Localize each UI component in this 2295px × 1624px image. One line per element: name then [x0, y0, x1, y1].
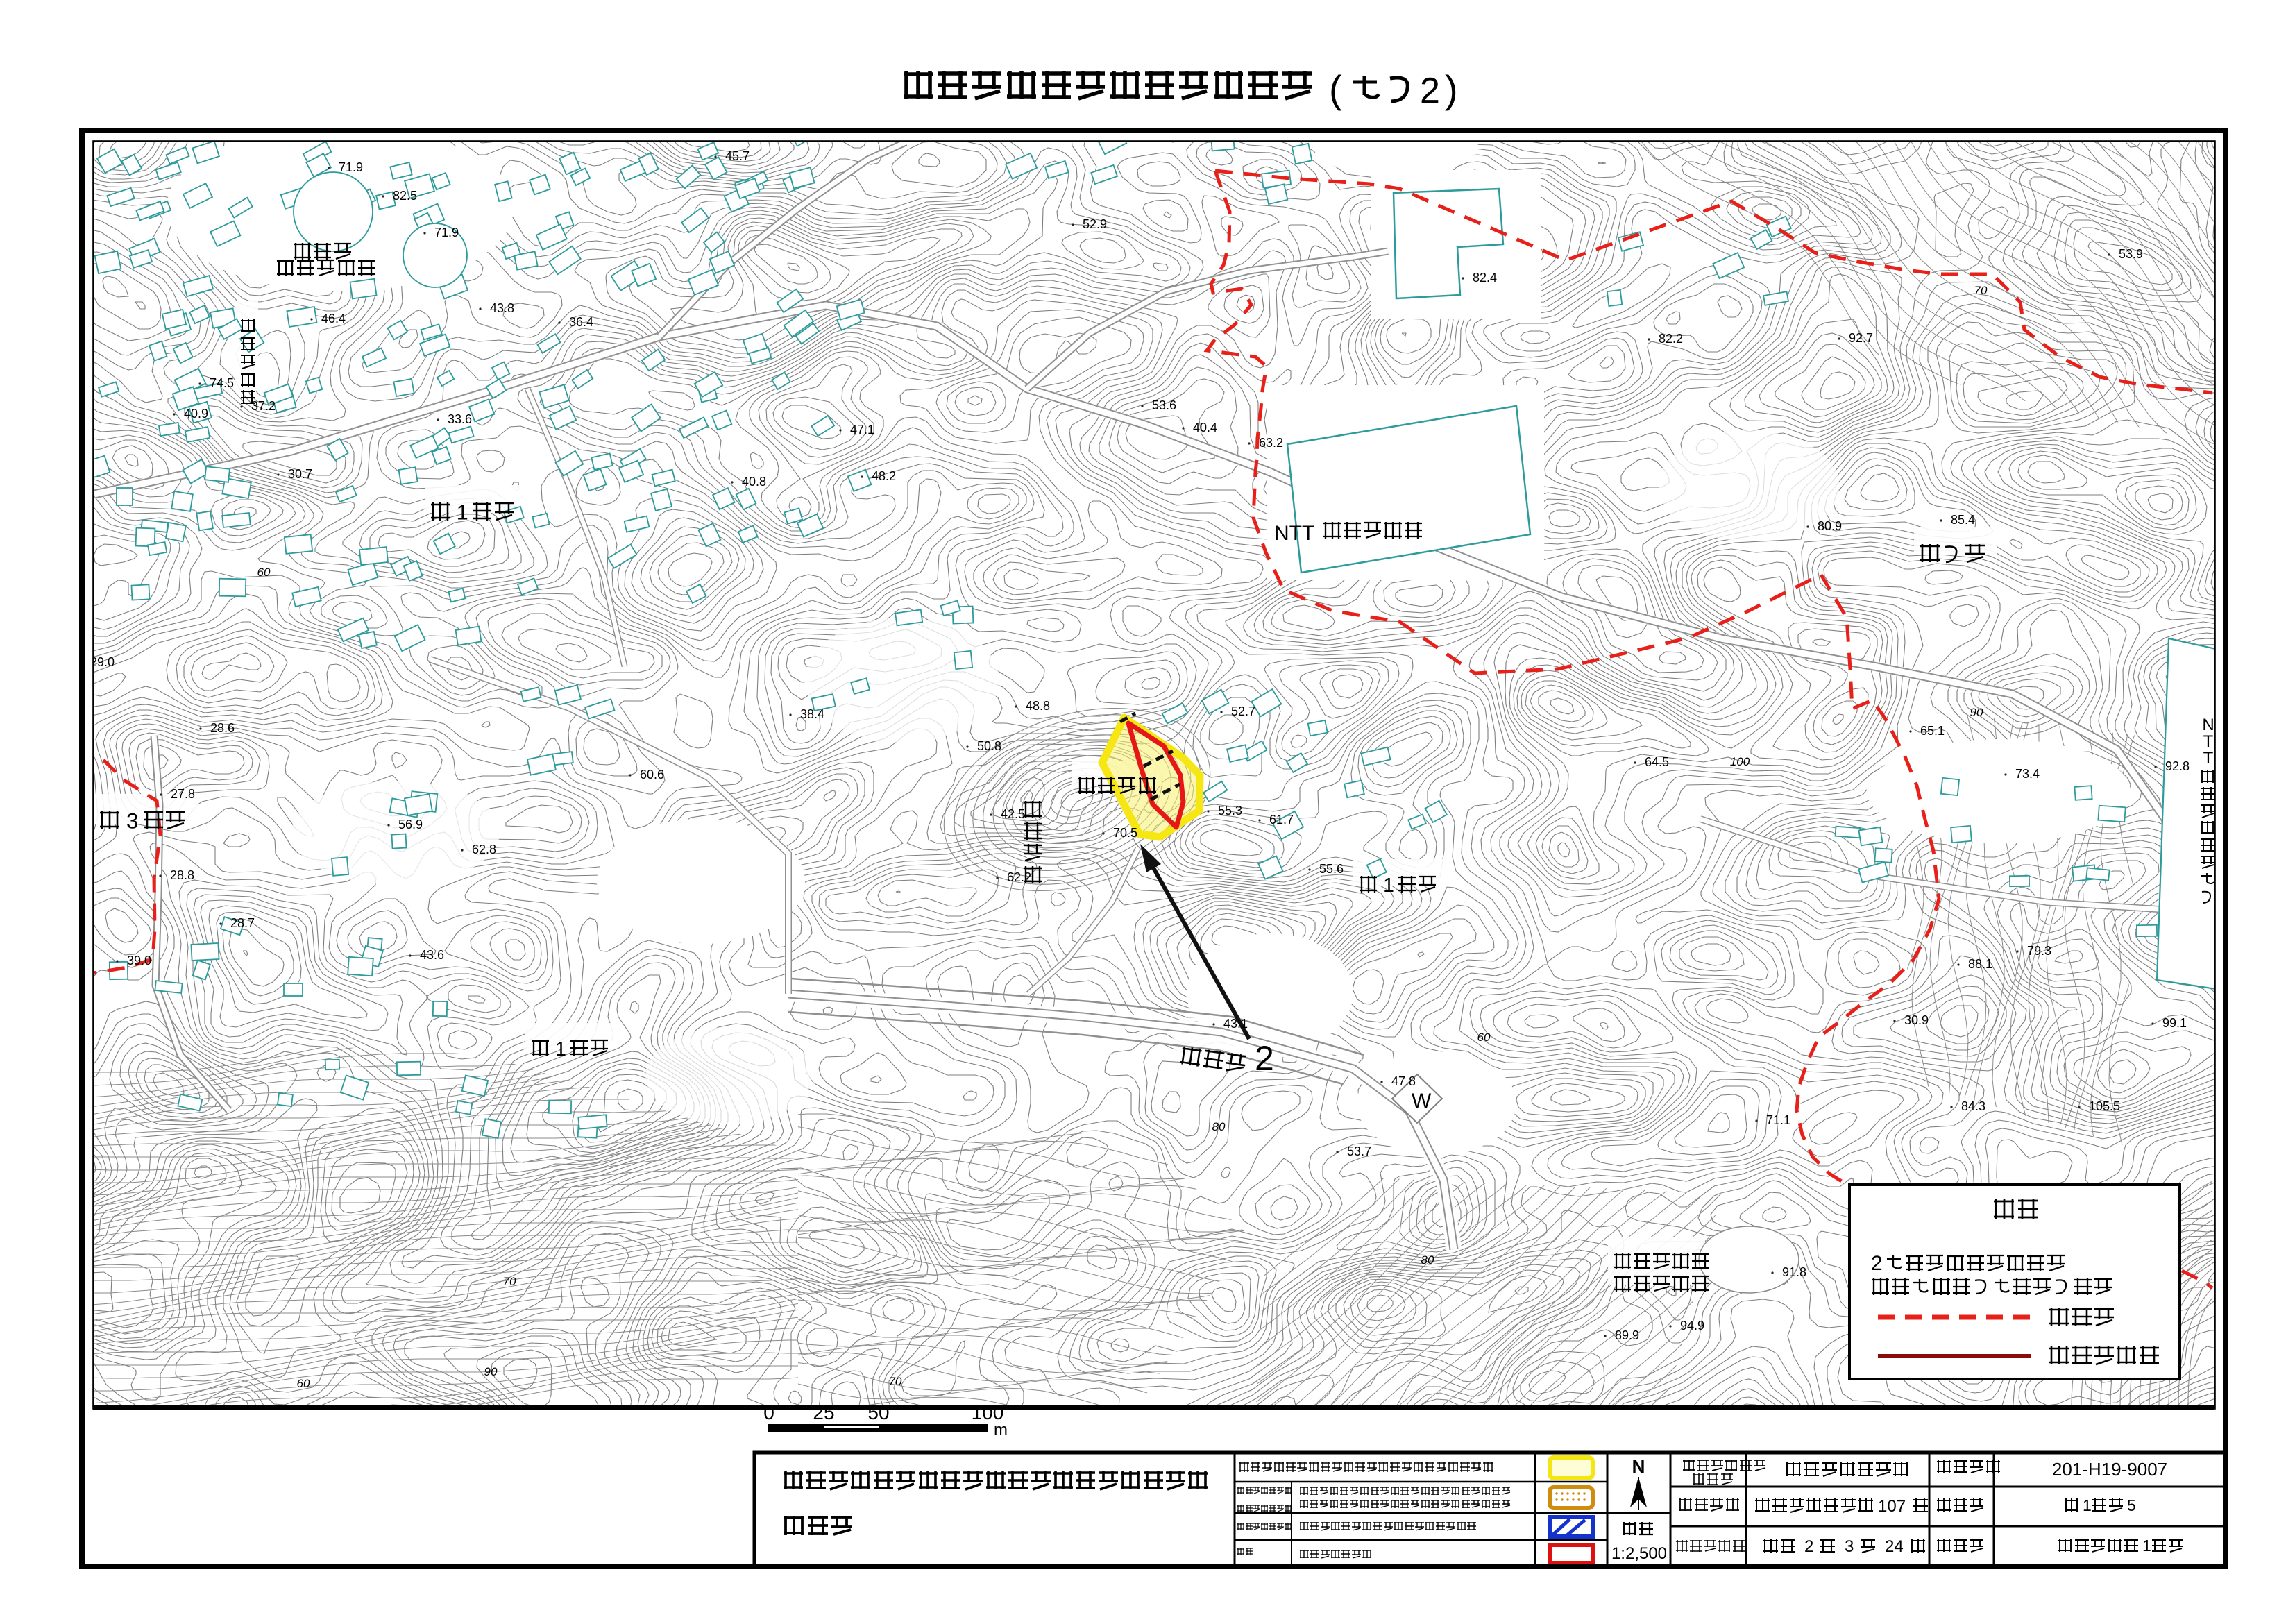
svg-text:55.6: 55.6: [1319, 862, 1344, 876]
svg-text:m: m: [994, 1421, 1008, 1439]
svg-text:3: 3: [1845, 1537, 1854, 1556]
svg-text:1: 1: [1383, 874, 1394, 897]
svg-text:43.6: 43.6: [420, 948, 444, 962]
svg-text:N: N: [1632, 1456, 1645, 1477]
svg-text:82.2: 82.2: [1659, 332, 1683, 346]
svg-text:80.9: 80.9: [1818, 519, 1842, 533]
svg-text:60: 60: [257, 566, 271, 579]
svg-text:40.9: 40.9: [184, 407, 208, 421]
svg-text:1:2,500: 1:2,500: [1611, 1544, 1667, 1563]
svg-text:W: W: [1412, 1090, 1432, 1113]
svg-text:64.5: 64.5: [1645, 755, 1669, 769]
svg-text:33.6: 33.6: [448, 412, 472, 426]
svg-text:43.8: 43.8: [490, 301, 514, 315]
svg-text:36.4: 36.4: [569, 315, 593, 329]
svg-text:52.7: 52.7: [1231, 704, 1255, 718]
svg-text:40.4: 40.4: [1193, 421, 1217, 434]
svg-text:T: T: [2203, 749, 2214, 768]
svg-text:N: N: [2202, 716, 2214, 734]
svg-text:(: (: [1329, 67, 1342, 111]
svg-text:2: 2: [1871, 1252, 1883, 1275]
svg-text:39.0: 39.0: [127, 954, 151, 967]
svg-text:53.7: 53.7: [1347, 1144, 1371, 1158]
svg-text:71.9: 71.9: [339, 160, 363, 174]
svg-text:48.2: 48.2: [872, 469, 896, 483]
svg-text:47.8: 47.8: [1391, 1074, 1416, 1088]
svg-text:52.9: 52.9: [1083, 217, 1107, 231]
svg-text:74.5: 74.5: [210, 376, 234, 390]
svg-text:5: 5: [2127, 1496, 2136, 1514]
svg-text:30.7: 30.7: [288, 467, 312, 481]
svg-text:70.5: 70.5: [1113, 826, 1137, 840]
svg-text:89.9: 89.9: [1615, 1328, 1639, 1342]
svg-text:46.4: 46.4: [321, 312, 346, 325]
svg-text:107: 107: [1878, 1497, 1906, 1516]
svg-text:84.3: 84.3: [1961, 1099, 1985, 1113]
svg-text:1: 1: [2083, 1496, 2092, 1514]
svg-text:50.8: 50.8: [977, 739, 1001, 753]
svg-text:85.4: 85.4: [1951, 513, 1975, 527]
svg-text:24: 24: [1885, 1537, 1904, 1556]
svg-text:42.5: 42.5: [1001, 807, 1025, 821]
svg-text:60: 60: [297, 1377, 310, 1390]
svg-text:53.6: 53.6: [1152, 398, 1176, 412]
svg-text:80: 80: [1421, 1253, 1434, 1267]
svg-text:50: 50: [867, 1402, 889, 1423]
svg-text:62.2: 62.2: [1007, 870, 1031, 884]
svg-text:73.4: 73.4: [2015, 767, 2040, 781]
svg-text:92.7: 92.7: [1849, 331, 1873, 345]
svg-text:60: 60: [1477, 1031, 1491, 1044]
svg-text:71.9: 71.9: [434, 226, 459, 239]
svg-text:28.7: 28.7: [230, 916, 255, 930]
svg-text:61.7: 61.7: [1269, 813, 1294, 827]
svg-text:82.5: 82.5: [393, 189, 417, 203]
svg-text:94.9: 94.9: [1680, 1319, 1704, 1333]
svg-text:38.4: 38.4: [800, 707, 824, 721]
svg-text:55.3: 55.3: [1218, 804, 1242, 818]
svg-text:90: 90: [1970, 706, 1983, 719]
svg-text:): ): [1445, 67, 1458, 111]
svg-text:28.8: 28.8: [170, 868, 194, 882]
svg-text:1: 1: [2142, 1537, 2151, 1555]
svg-text:90: 90: [484, 1365, 498, 1378]
svg-text:47.1: 47.1: [850, 423, 874, 437]
svg-text:63.2: 63.2: [1259, 436, 1283, 450]
svg-text:1: 1: [457, 501, 468, 525]
svg-text:0: 0: [763, 1402, 774, 1423]
svg-text:30.9: 30.9: [1904, 1013, 1929, 1027]
svg-text:53.9: 53.9: [2119, 247, 2143, 261]
svg-text:27.8: 27.8: [171, 787, 195, 801]
svg-text:201-H19-9007: 201-H19-9007: [2052, 1459, 2167, 1480]
svg-text:28.6: 28.6: [210, 721, 235, 735]
svg-text:99.1: 99.1: [2162, 1016, 2187, 1030]
svg-text:NTT: NTT: [1274, 522, 1314, 545]
svg-text:70: 70: [1974, 284, 1988, 297]
svg-text:70: 70: [503, 1275, 516, 1288]
svg-text:48.8: 48.8: [1026, 699, 1050, 713]
svg-text:79.3: 79.3: [2027, 944, 2051, 958]
svg-text:56.9: 56.9: [398, 818, 423, 831]
svg-text:62.8: 62.8: [472, 843, 496, 856]
svg-text:71.1: 71.1: [1766, 1113, 1790, 1127]
svg-text:37.2: 37.2: [251, 399, 276, 413]
svg-text:70: 70: [889, 1375, 902, 1388]
svg-text:82.4: 82.4: [1473, 271, 1497, 285]
svg-text:91.8: 91.8: [1782, 1265, 1806, 1279]
svg-text:25: 25: [813, 1402, 834, 1423]
svg-text:105.5: 105.5: [2089, 1099, 2120, 1113]
svg-text:88.1: 88.1: [1968, 957, 1992, 971]
svg-text:65.1: 65.1: [1920, 724, 1945, 738]
svg-text:40.8: 40.8: [742, 475, 766, 489]
svg-text:80: 80: [1212, 1120, 1226, 1133]
svg-text:2: 2: [1804, 1537, 1813, 1556]
svg-text:92.8: 92.8: [2165, 759, 2190, 773]
svg-text:60.6: 60.6: [640, 768, 664, 781]
svg-text:1: 1: [555, 1038, 566, 1060]
svg-text:2: 2: [1255, 1039, 1274, 1078]
svg-text:45.7: 45.7: [725, 149, 750, 163]
svg-text:43.1: 43.1: [1223, 1017, 1248, 1031]
svg-text:T: T: [2203, 732, 2214, 751]
svg-text:100: 100: [1730, 755, 1750, 768]
svg-text:2: 2: [1420, 71, 1440, 111]
svg-text:3: 3: [126, 809, 139, 834]
